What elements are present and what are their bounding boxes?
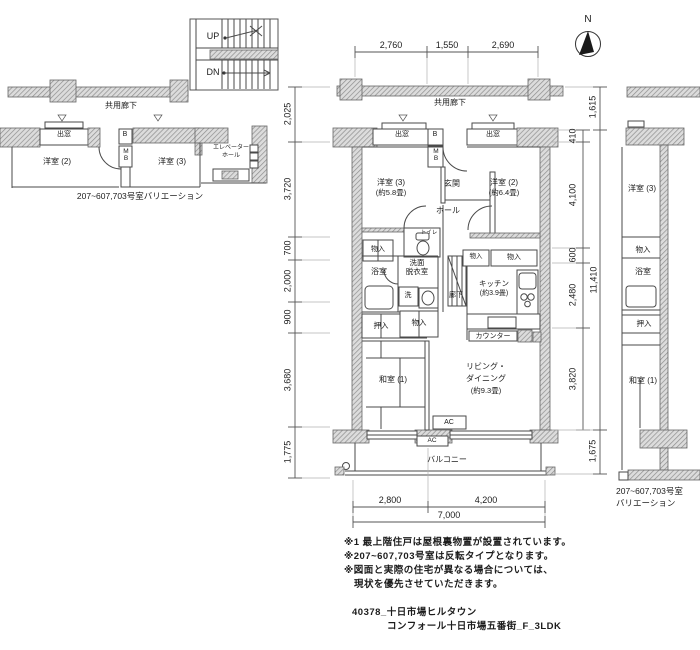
stairwell xyxy=(190,19,278,90)
dim-left-3: 700 xyxy=(284,240,293,255)
main-counter-label: カウンター xyxy=(476,333,511,340)
dim-right-outer-3: 1,675 xyxy=(589,440,598,463)
main-bay-left-label: 出窓 xyxy=(395,131,409,138)
main-western3-label: 洋室 (3) xyxy=(377,179,405,187)
main-meter-box-label: MB xyxy=(432,148,439,162)
main-storage-mid-label: 物入 xyxy=(412,319,427,327)
rv-caption-line2: バリエーション xyxy=(616,499,675,508)
left-variation-plan xyxy=(0,115,267,188)
main-washitsu-label: 和室 (1) xyxy=(379,376,407,384)
main-western3-size: (約5.8畳) xyxy=(376,189,406,197)
dim-right-inner-2: 4,100 xyxy=(569,184,578,207)
dim-left-5: 900 xyxy=(284,309,293,324)
rv-caption-line1: 207~607,703号室 xyxy=(616,487,683,496)
rv-western3-label: 洋室 (3) xyxy=(628,185,656,193)
main-duct-label: B xyxy=(433,131,438,138)
lv-elevator-label-line2: ホール xyxy=(222,153,240,159)
dim-top-1: 2,760 xyxy=(380,41,403,50)
dim-left-4: 2,000 xyxy=(284,270,293,293)
dim-bottom-3: 7,000 xyxy=(438,511,461,520)
dim-right-inner-4: 2,480 xyxy=(569,284,578,307)
lv-caption: 207~607,703号室バリエーション xyxy=(77,192,203,201)
main-storage-nw-label: 物入 xyxy=(371,246,385,253)
lv-bay-window-label: 出窓 xyxy=(57,131,71,138)
main-storage-k1-label: 物入 xyxy=(470,254,483,261)
main-living-label-line1: リビング・ xyxy=(466,363,506,371)
main-hall-label: ホール xyxy=(436,207,460,215)
main-corridor-label: 廊下 xyxy=(449,292,463,299)
dim-right-inner-1: 410 xyxy=(569,128,578,143)
stairs-dn-label: DN xyxy=(207,68,220,77)
main-living-label-line2: ダイニング xyxy=(466,375,506,383)
corridor-left xyxy=(8,80,188,102)
main-bay-right-label: 出窓 xyxy=(486,131,500,138)
main-bath-label: 浴室 xyxy=(371,268,387,276)
main-oshiire-label: 押入 xyxy=(374,322,389,330)
main-washroom-label-line2: 脱衣室 xyxy=(406,268,429,276)
main-living-size: (約9.3畳) xyxy=(471,387,501,395)
main-storage-k2-label: 物入 xyxy=(507,254,521,261)
main-kitchen-size: (約3.9畳) xyxy=(480,290,508,297)
main-kitchen-label: キッチン xyxy=(479,280,509,288)
right-variation-plan xyxy=(619,87,700,480)
main-western2-label: 洋室 (2) xyxy=(490,179,518,187)
footer-line-2: コンフォール十日市場五番街_F_3LDK xyxy=(387,622,561,632)
main-washroom-label-line1: 洗面 xyxy=(410,259,425,267)
note-line-3: ※図面と実際の住宅が異なる場合については、 xyxy=(344,566,553,576)
lv-duct-label: B xyxy=(123,131,128,138)
dim-top-3: 2,690 xyxy=(492,41,515,50)
main-toilet-label: トイレ xyxy=(421,231,438,237)
rv-oshiire-label: 押入 xyxy=(637,320,652,328)
dim-bottom-1: 2,800 xyxy=(379,496,402,505)
dim-right-outer-2: 11,410 xyxy=(590,267,599,294)
dim-left-6: 3,680 xyxy=(284,369,293,392)
north-label: N xyxy=(584,15,591,25)
rv-bath-label: 浴室 xyxy=(635,268,651,276)
dim-left-2: 3,720 xyxy=(284,178,293,201)
note-line-4: 現状を優先させていただきます。 xyxy=(344,580,503,590)
corridor-left-label: 共用廊下 xyxy=(105,102,137,110)
dim-right-inner-3: 600 xyxy=(569,247,578,262)
main-entrance-label: 玄関 xyxy=(444,180,460,188)
rv-storage-label: 物入 xyxy=(636,246,651,254)
note-line-2: ※207~607,703号室は反転タイプとなります。 xyxy=(344,552,554,562)
dim-top-2: 1,550 xyxy=(436,41,459,50)
stairs-up-label: UP xyxy=(207,32,220,41)
main-ac1-label: AC xyxy=(444,419,454,426)
dim-left-7: 1,775 xyxy=(284,441,293,464)
lv-western2-label: 洋室 (2) xyxy=(43,158,71,166)
lv-meter-box-label: MB xyxy=(122,148,129,162)
north-arrow-icon xyxy=(576,31,601,57)
main-ac2-label: AC xyxy=(427,438,436,445)
main-western2-size: (約6.4畳) xyxy=(489,189,519,197)
rv-washitsu-label: 和室 (1) xyxy=(629,377,657,385)
floorplan-page: UP DN 共用廊下 共用廊下 出窓 洋室 (2) B MB 洋室 (3) エレ… xyxy=(0,0,700,650)
note-line-1: ※1 最上階住戸は屋根裏物置が設置されています。 xyxy=(344,538,571,548)
lv-elevator-label-line1: エレベーター xyxy=(213,145,249,151)
dim-right-outer-1: 1,615 xyxy=(589,96,598,119)
dim-left-1: 2,025 xyxy=(284,103,293,126)
lv-western3-label: 洋室 (3) xyxy=(158,158,186,166)
main-washer-label: 洗 xyxy=(405,292,412,299)
footer-line-1: 40378_十日市場ヒルタウン xyxy=(352,608,477,618)
dim-right-inner-5: 3,820 xyxy=(569,368,578,391)
dim-bottom-2: 4,200 xyxy=(475,496,498,505)
corridor-center-label: 共用廊下 xyxy=(434,99,466,107)
main-balcony-label: バルコニー xyxy=(427,456,467,464)
